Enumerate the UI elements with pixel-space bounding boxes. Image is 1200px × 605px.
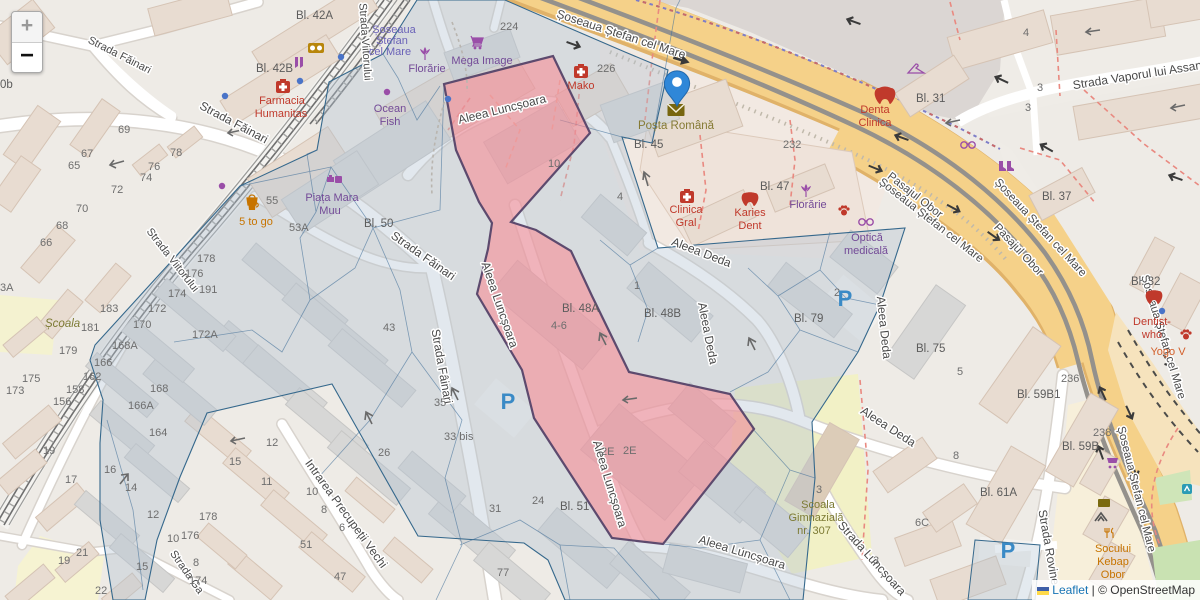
svg-text:15: 15 xyxy=(136,561,148,573)
svg-text:74: 74 xyxy=(140,172,152,184)
svg-text:Dent: Dent xyxy=(738,220,761,232)
svg-text:191: 191 xyxy=(199,284,217,296)
svg-text:21: 21 xyxy=(76,547,88,559)
svg-text:Bl. 48B: Bl. 48B xyxy=(644,308,681,320)
svg-text:Optică: Optică xyxy=(851,232,884,244)
svg-text:31: 31 xyxy=(489,503,501,515)
svg-text:178: 178 xyxy=(199,511,217,523)
svg-text:176: 176 xyxy=(181,530,199,542)
svg-text:17: 17 xyxy=(65,474,77,486)
svg-text:164: 164 xyxy=(149,427,167,439)
svg-text:12: 12 xyxy=(147,509,159,521)
svg-text:Poșta Română: Poșta Română xyxy=(638,120,715,132)
svg-text:5: 5 xyxy=(957,366,963,378)
svg-text:66: 66 xyxy=(40,237,52,249)
svg-text:cel Mare: cel Mare xyxy=(369,46,411,58)
svg-text:14: 14 xyxy=(125,482,137,494)
svg-text:3: 3 xyxy=(1037,82,1043,94)
svg-text:47: 47 xyxy=(334,571,346,583)
svg-text:6: 6 xyxy=(339,522,345,534)
svg-text:68: 68 xyxy=(56,220,68,232)
svg-text:Bl. 37: Bl. 37 xyxy=(1042,191,1071,203)
svg-text:Dentist-: Dentist- xyxy=(1133,316,1171,328)
svg-text:Bl. 47: Bl. 47 xyxy=(760,181,789,193)
svg-text:172: 172 xyxy=(148,303,166,315)
svg-text:26: 26 xyxy=(378,447,390,459)
svg-text:medicală: medicală xyxy=(844,245,889,257)
svg-text:Bl. 50: Bl. 50 xyxy=(364,218,393,230)
svg-text:Mako: Mako xyxy=(568,80,595,92)
svg-text:77: 77 xyxy=(497,567,509,579)
svg-text:Gimnazială: Gimnazială xyxy=(788,512,844,524)
svg-text:226: 226 xyxy=(597,63,615,75)
svg-text:Mega Image: Mega Image xyxy=(451,55,512,67)
svg-text:Denta: Denta xyxy=(860,104,890,116)
svg-text:168A: 168A xyxy=(112,340,138,352)
svg-text:16: 16 xyxy=(104,464,116,476)
svg-text:19: 19 xyxy=(43,445,55,457)
svg-text:Fish: Fish xyxy=(380,116,401,128)
svg-text:72: 72 xyxy=(111,184,123,196)
svg-text:Clinica: Clinica xyxy=(669,204,703,216)
svg-text:173: 173 xyxy=(6,385,24,397)
svg-text:67: 67 xyxy=(81,148,93,160)
svg-text:11: 11 xyxy=(261,476,272,488)
svg-text:238: 238 xyxy=(1093,427,1111,439)
svg-text:162: 162 xyxy=(83,371,101,383)
svg-text:nr. 307: nr. 307 xyxy=(797,525,831,537)
svg-text:Bl. 59B: Bl. 59B xyxy=(1062,441,1099,453)
svg-text:172A: 172A xyxy=(192,329,218,341)
svg-text:19: 19 xyxy=(58,555,70,567)
svg-text:3A: 3A xyxy=(0,282,14,294)
svg-text:78: 78 xyxy=(170,147,182,159)
svg-text:232: 232 xyxy=(783,139,801,151)
svg-text:P: P xyxy=(501,389,516,414)
svg-text:69: 69 xyxy=(118,124,130,136)
svg-text:174: 174 xyxy=(189,575,207,587)
svg-text:Piața Mara: Piața Mara xyxy=(305,192,359,204)
svg-text:10: 10 xyxy=(548,158,560,170)
svg-text:Florărie: Florărie xyxy=(408,63,445,75)
svg-text:Școala: Școala xyxy=(45,318,80,330)
svg-text:181: 181 xyxy=(81,322,99,334)
svg-text:Bl. 48A: Bl. 48A xyxy=(562,303,599,315)
svg-text:70: 70 xyxy=(76,203,88,215)
svg-text:166: 166 xyxy=(94,357,112,369)
svg-text:who: who xyxy=(1141,329,1162,341)
svg-text:6C: 6C xyxy=(915,517,929,529)
svg-text:5 to go: 5 to go xyxy=(239,216,273,228)
svg-text:4: 4 xyxy=(1023,27,1029,39)
svg-text:24: 24 xyxy=(532,495,544,507)
svg-text:22: 22 xyxy=(95,585,107,597)
svg-text:2E: 2E xyxy=(601,446,614,458)
svg-text:8: 8 xyxy=(193,557,199,569)
svg-text:Bl. 61A: Bl. 61A xyxy=(980,487,1017,499)
svg-text:178: 178 xyxy=(197,253,215,265)
svg-text:224: 224 xyxy=(500,21,518,33)
svg-text:236: 236 xyxy=(1061,373,1079,385)
svg-text:183: 183 xyxy=(100,303,118,315)
svg-text:3: 3 xyxy=(873,555,879,567)
svg-text:2E: 2E xyxy=(623,445,636,457)
svg-text:Muu: Muu xyxy=(319,205,340,217)
svg-text:51: 51 xyxy=(300,539,312,551)
svg-text:10: 10 xyxy=(167,533,179,545)
svg-text:4: 4 xyxy=(617,191,623,203)
svg-text:10: 10 xyxy=(306,486,318,498)
svg-text:12: 12 xyxy=(266,437,278,449)
svg-text:43: 43 xyxy=(383,322,395,334)
svg-text:Socului: Socului xyxy=(1095,543,1131,555)
svg-text:166A: 166A xyxy=(128,400,154,412)
svg-text:170: 170 xyxy=(133,319,151,331)
svg-text:Clinica: Clinica xyxy=(858,117,892,129)
svg-text:156: 156 xyxy=(53,396,71,408)
svg-text:179: 179 xyxy=(59,345,77,357)
svg-text:Humanitas: Humanitas xyxy=(255,108,308,120)
svg-text:1: 1 xyxy=(634,280,640,292)
svg-text:65: 65 xyxy=(68,160,80,172)
svg-text:4-6: 4-6 xyxy=(551,320,567,332)
svg-text:Bl. 42B: Bl. 42B xyxy=(256,63,293,75)
svg-text:Bl. 42A: Bl. 42A xyxy=(296,10,333,22)
svg-text:Bl. 32: Bl. 32 xyxy=(1131,276,1160,288)
svg-text:Bl. 59B1: Bl. 59B1 xyxy=(1017,389,1060,401)
svg-text:Yogo V: Yogo V xyxy=(1150,346,1186,358)
svg-text:Bl. 31: Bl. 31 xyxy=(916,93,945,105)
svg-text:P: P xyxy=(1001,538,1016,563)
svg-text:3: 3 xyxy=(816,484,822,496)
svg-text:Bl. 51: Bl. 51 xyxy=(560,501,589,513)
svg-text:33 bis: 33 bis xyxy=(444,431,474,443)
svg-text:Bl. 79: Bl. 79 xyxy=(794,313,823,325)
svg-text:P: P xyxy=(838,286,853,311)
svg-text:176: 176 xyxy=(185,268,203,280)
svg-text:Ocean: Ocean xyxy=(374,103,406,115)
svg-text:8: 8 xyxy=(321,504,327,516)
svg-text:175: 175 xyxy=(22,373,40,385)
svg-text:35: 35 xyxy=(434,397,446,409)
svg-text:Florărie: Florărie xyxy=(789,199,826,211)
svg-text:Bl. 45: Bl. 45 xyxy=(634,139,663,151)
svg-text:3: 3 xyxy=(1025,102,1031,114)
svg-text:168: 168 xyxy=(150,383,168,395)
svg-text:Bl. 75: Bl. 75 xyxy=(916,343,945,355)
svg-text:Școala: Școala xyxy=(801,499,836,511)
svg-text:Gral: Gral xyxy=(676,217,697,229)
svg-text:Karies: Karies xyxy=(734,207,766,219)
svg-text:0b: 0b xyxy=(0,79,13,91)
svg-text:55: 55 xyxy=(266,195,278,207)
svg-text:53A: 53A xyxy=(289,222,309,234)
svg-text:174: 174 xyxy=(168,288,186,300)
svg-text:Farmacia: Farmacia xyxy=(259,95,306,107)
svg-text:8: 8 xyxy=(953,450,959,462)
svg-text:15: 15 xyxy=(229,456,241,468)
svg-text:158: 158 xyxy=(66,384,84,396)
svg-text:Kebap: Kebap xyxy=(1097,556,1129,568)
